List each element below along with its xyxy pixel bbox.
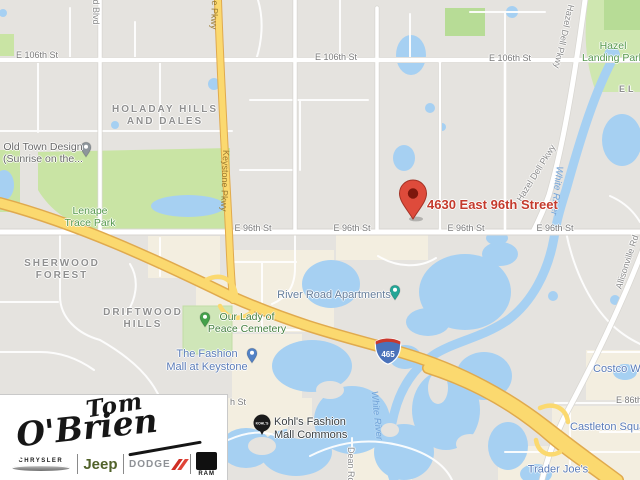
road-label-keystone-mid: Keystone Pkwy bbox=[219, 150, 231, 212]
svg-text:KOHL'S: KOHL'S bbox=[256, 422, 269, 426]
poi-label-kohls-commons: Kohl's FashionMall Commons bbox=[274, 416, 347, 442]
divider bbox=[77, 454, 79, 474]
street-label-e106-1: E 106th St bbox=[16, 50, 58, 60]
poi-label-costco: Costco Wholesale bbox=[593, 363, 640, 376]
dealer-name-line2: O'Brien bbox=[14, 401, 159, 455]
neighborhood-label-driftwood: DRIFTWOODHILLS bbox=[103, 307, 183, 331]
street-label-e96-1: E 96th St bbox=[234, 223, 271, 233]
jeep-logo: Jeep bbox=[83, 456, 117, 473]
address-marker-label: 4630 East 96th Street bbox=[427, 197, 558, 212]
road-label-dean-rd: Dean Rd bbox=[346, 447, 356, 480]
dodge-logo: DODGE bbox=[129, 459, 185, 470]
poi-label-our-lady-cemetery: Our Lady ofPeace Cemetery bbox=[208, 311, 286, 335]
neighborhood-label-holaday: HOLADAY HILLSAND DALES bbox=[112, 104, 218, 128]
street-label-e96-2: E 96th St bbox=[333, 223, 370, 233]
street-label-e96-3: E 96th St bbox=[447, 223, 484, 233]
street-label-e106-2: E 106th St bbox=[315, 52, 357, 62]
svg-text:465: 465 bbox=[381, 350, 395, 359]
dealer-logo-box: Tom O'Brien CHRYSLER Jeep DODGE RAM bbox=[0, 394, 228, 480]
park-label-hazel-landing: HazelLanding Park bbox=[582, 40, 640, 64]
poi-label-trader-joes: Trader Joe's bbox=[528, 464, 588, 477]
street-label-e86: E 86th St bbox=[616, 395, 640, 405]
poi-label-river-road-apartments: River Road Apartments bbox=[277, 289, 391, 301]
poi-label-old-town-design: Old Town Design(Sunrise on the... bbox=[3, 142, 83, 165]
street-label-e96-4: E 96th St bbox=[536, 223, 573, 233]
poi-label-castleton-square: Castleton Square bbox=[570, 421, 640, 434]
park-label-lenape: LenapeTrace Park bbox=[65, 205, 116, 229]
ram-logo: RAM bbox=[196, 452, 217, 477]
street-label-partial: h St bbox=[230, 397, 246, 407]
neighborhood-label-sherwood: SHERWOODFOREST bbox=[24, 258, 100, 282]
street-label-e106-3: E 106th St bbox=[489, 53, 531, 63]
dealer-name-script: Tom O'Brien bbox=[0, 395, 227, 449]
map-screenshot: 465 KOHL'S E 106th St E 106th St E 106th… bbox=[0, 0, 640, 480]
poi-label-fashion-mall: The FashionMall at Keystone bbox=[166, 348, 247, 374]
road-label-field-blvd: field Blvd bbox=[91, 0, 101, 25]
divider bbox=[123, 454, 125, 474]
brand-logos-row: CHRYSLER Jeep DODGE RAM bbox=[4, 451, 223, 477]
divider bbox=[190, 454, 192, 474]
ram-head-icon bbox=[196, 452, 217, 470]
neighborhood-label-partial: EL bbox=[619, 83, 637, 95]
